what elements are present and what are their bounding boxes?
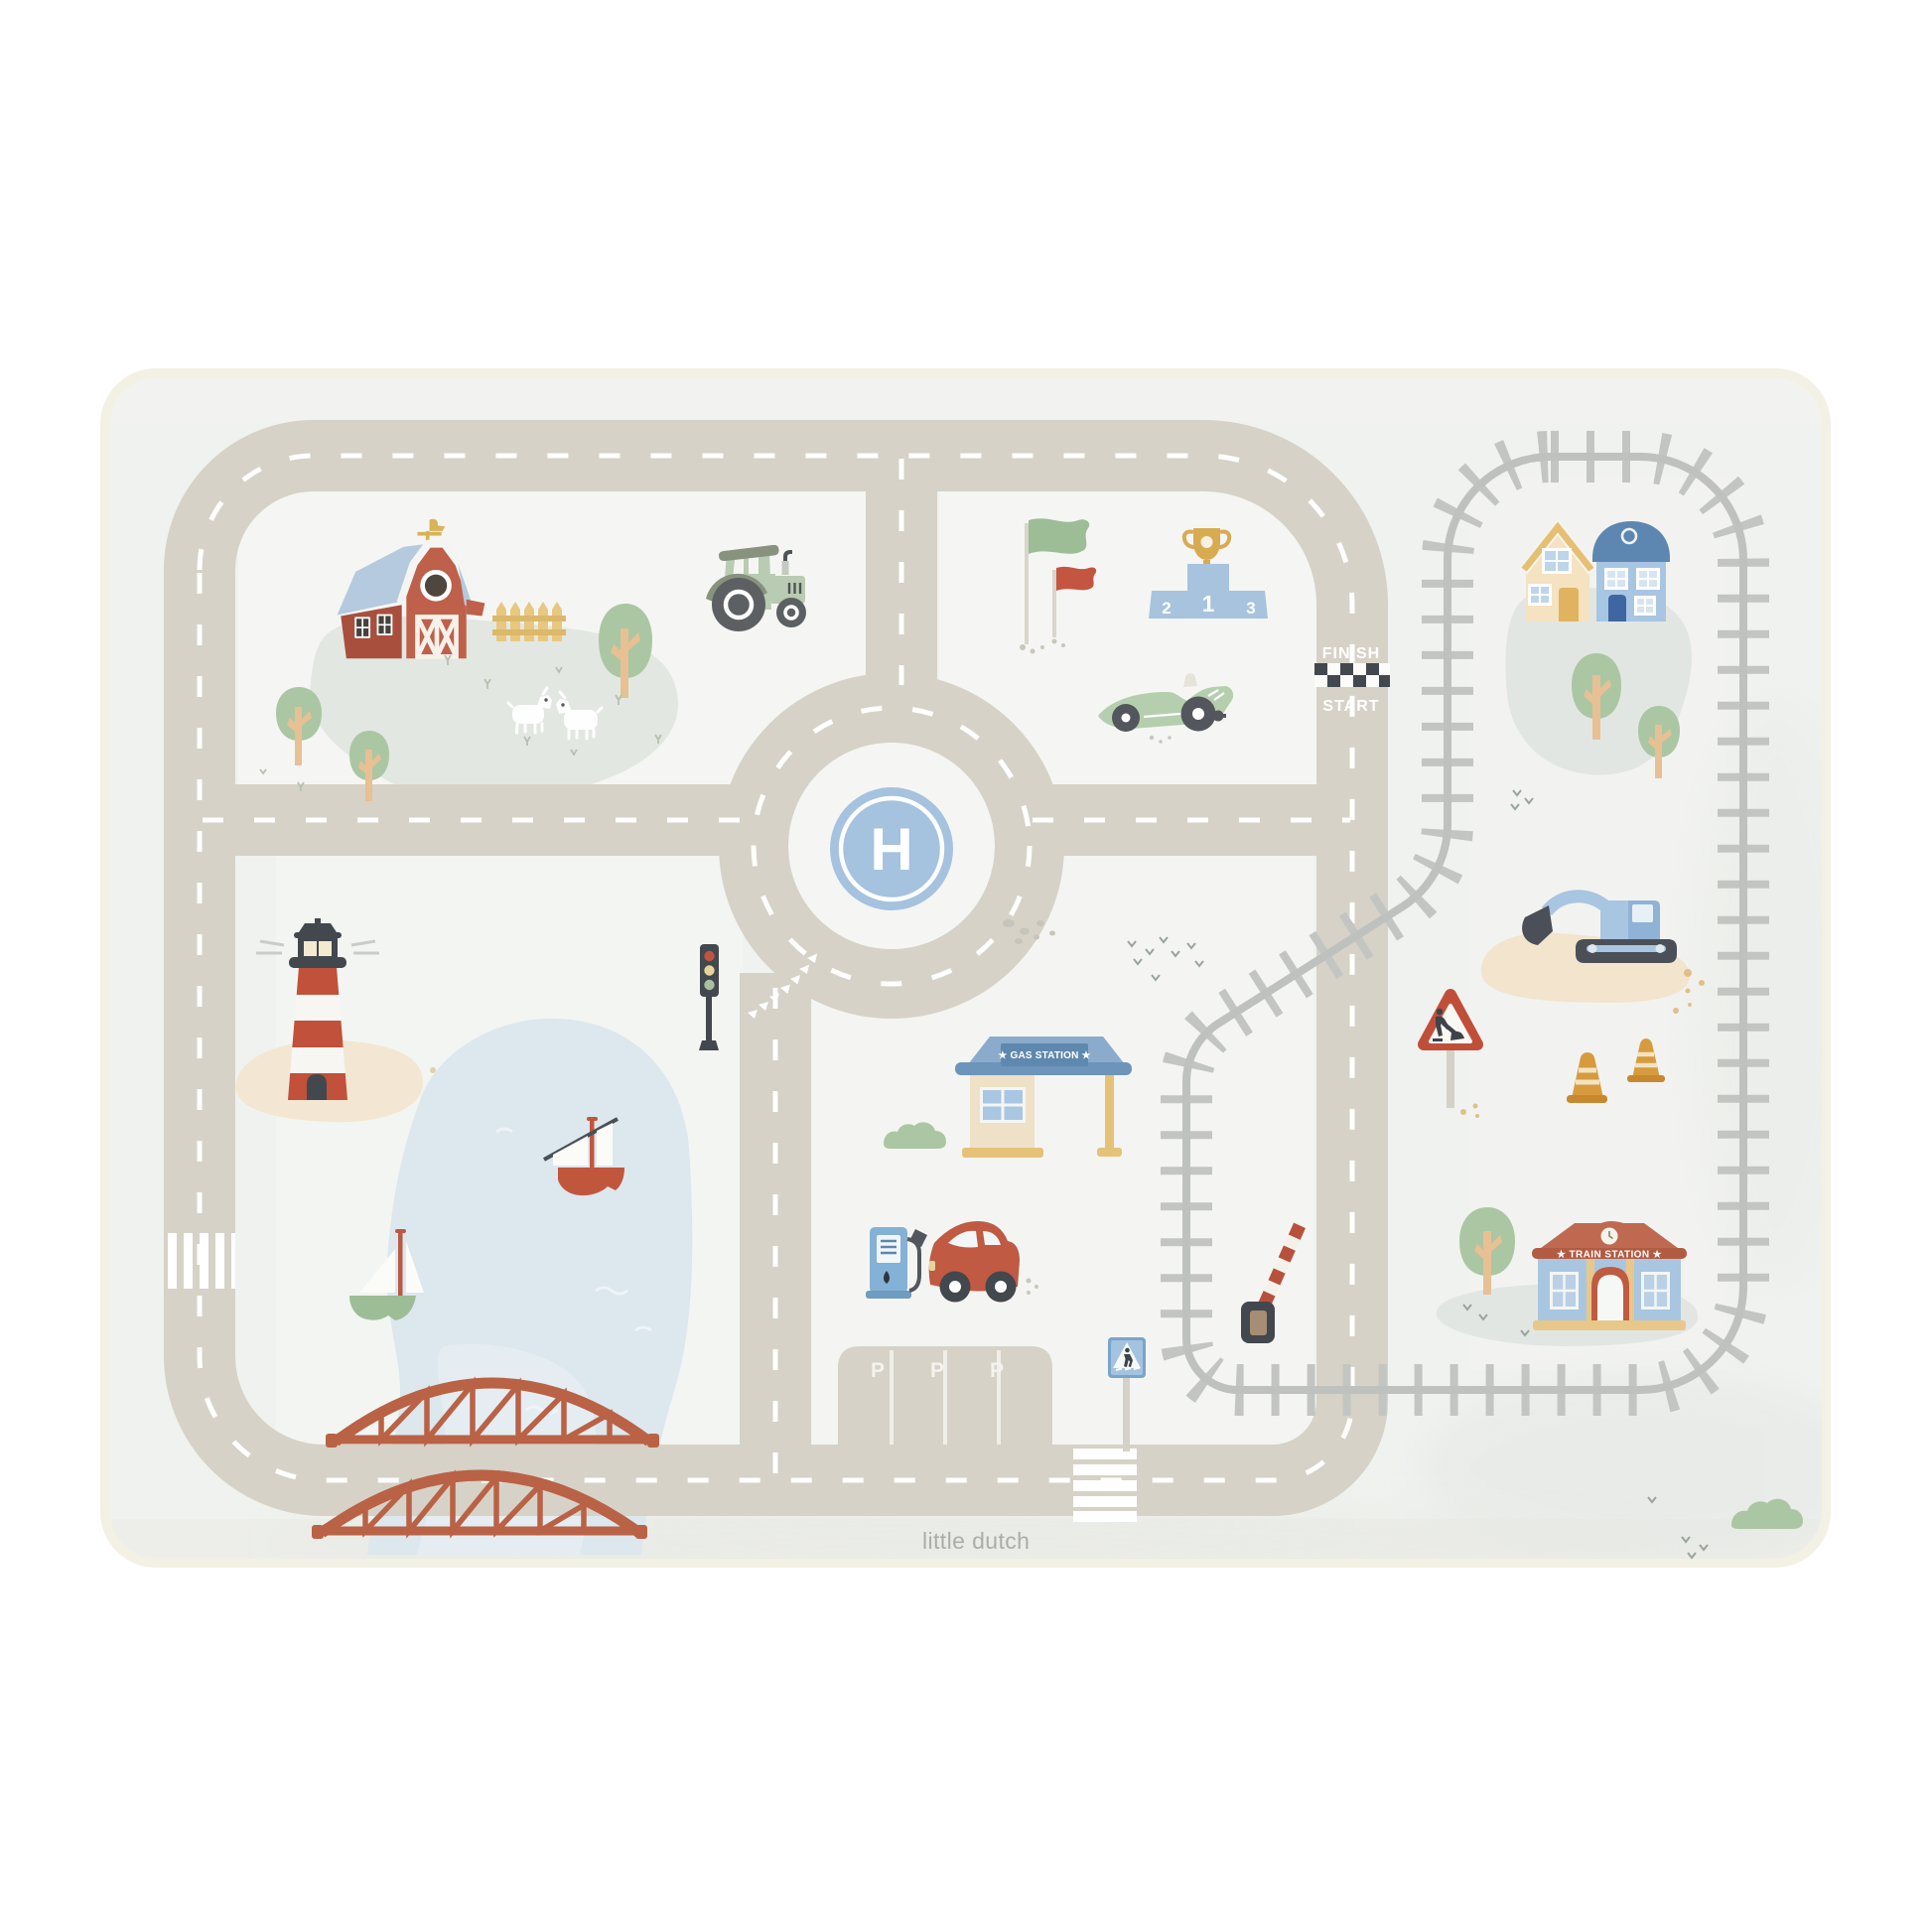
svg-text:1: 1 [1202,591,1215,617]
svg-text:P: P [871,1359,885,1382]
svg-text:START: START [1322,698,1379,715]
svg-text:P: P [930,1359,944,1382]
svg-text:2: 2 [1162,599,1171,618]
svg-text:3: 3 [1246,599,1255,618]
svg-text:★ GAS STATION ★: ★ GAS STATION ★ [998,1050,1090,1061]
svg-text:P: P [990,1359,1004,1382]
svg-text:H: H [870,816,912,883]
svg-text:FINISH: FINISH [1322,645,1380,662]
svg-text:★ TRAIN STATION ★: ★ TRAIN STATION ★ [1557,1250,1662,1261]
svg-text:little dutch: little dutch [922,1528,1030,1554]
